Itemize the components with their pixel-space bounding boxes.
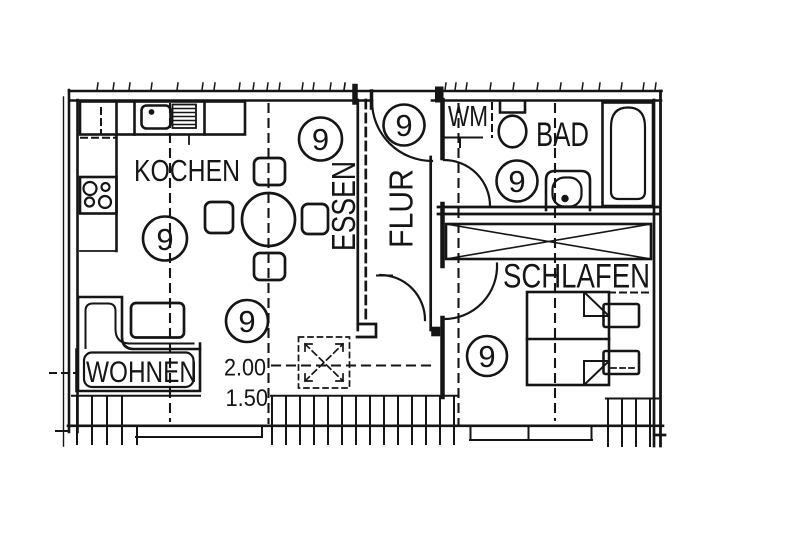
svg-text:9: 9 bbox=[312, 122, 329, 157]
svg-text:9: 9 bbox=[508, 164, 525, 199]
svg-text:SCHLAFEN: SCHLAFEN bbox=[503, 258, 650, 296]
svg-text:ESSEN: ESSEN bbox=[325, 161, 362, 251]
svg-text:9: 9 bbox=[156, 222, 173, 257]
svg-text:9: 9 bbox=[238, 304, 255, 339]
svg-text:9: 9 bbox=[478, 339, 495, 374]
svg-text:KOCHEN: KOCHEN bbox=[134, 153, 240, 188]
svg-text:2.00: 2.00 bbox=[224, 355, 266, 382]
svg-text:BAD: BAD bbox=[536, 116, 589, 154]
svg-text:FLUR: FLUR bbox=[383, 169, 420, 248]
svg-text:1.50: 1.50 bbox=[226, 385, 269, 412]
svg-text:9: 9 bbox=[395, 108, 412, 143]
svg-text:WOHNEN: WOHNEN bbox=[86, 356, 197, 389]
svg-text:WM: WM bbox=[448, 101, 488, 133]
